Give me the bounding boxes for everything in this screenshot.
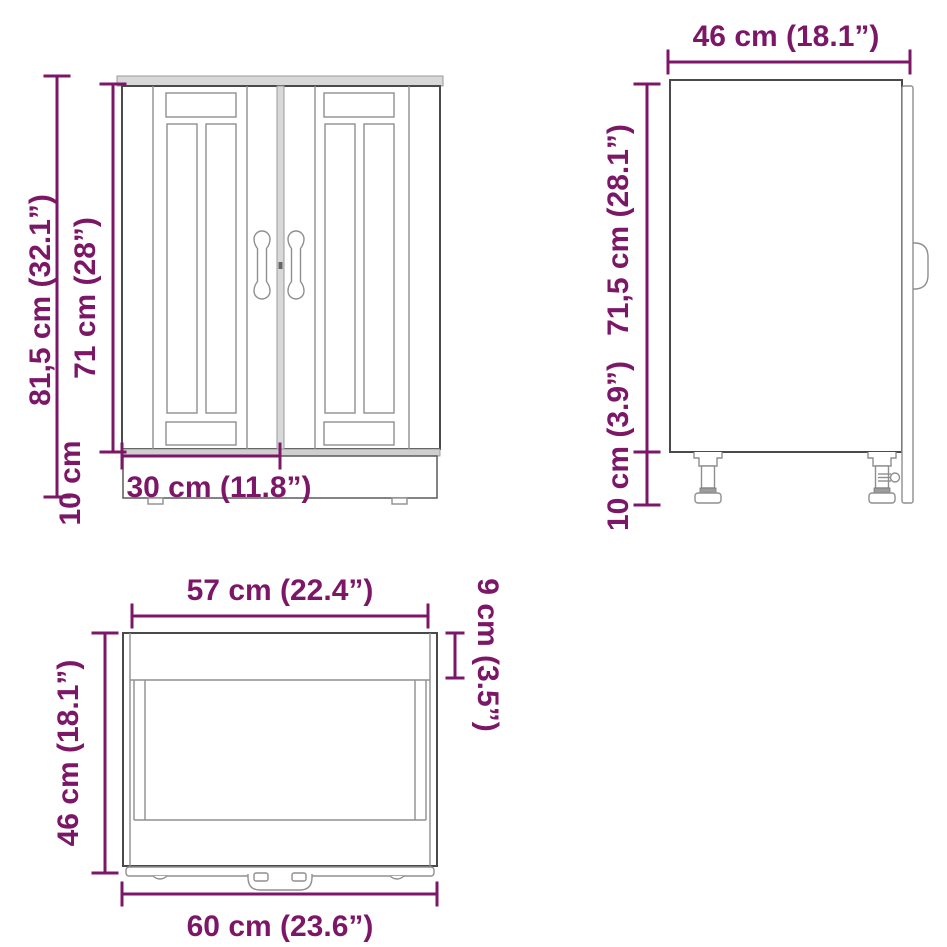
side-view: 46 cm (18.1”) 71,5 cm (28.1”) 10 cm (3.9…: [602, 20, 928, 531]
top-view: 57 cm (22.4”) 9 cm (3.5”) 46 cm (18.1”) …: [52, 574, 504, 943]
top-cabinet-body: [123, 633, 437, 866]
side-depth-label: 46 cm (18.1”): [693, 20, 880, 53]
side-leg-height-label: 10 cm (3.9”): [602, 361, 635, 531]
front-door-width-label: 30 cm (11.8”): [126, 471, 311, 504]
side-left-foot-stem: [702, 466, 715, 488]
side-left-foot-collar: [700, 488, 716, 493]
side-body-height-label: 71,5 cm (28.1”): [602, 124, 635, 336]
side-door-handle: [913, 243, 928, 289]
top-depth-label: 46 cm (18.1”): [52, 660, 85, 847]
side-left-foot-bracket: [694, 452, 722, 466]
side-right-foot-collar: [874, 488, 890, 493]
top-door-front-notch: [153, 876, 167, 879]
side-right-foot-pad: [869, 493, 895, 503]
side-right-foot-bracket: [868, 452, 896, 466]
top-handle-post: [292, 873, 306, 881]
diagram-canvas: 81,5 cm (32.1”) 71 cm (28”) 10 cm 30 cm …: [0, 0, 947, 947]
top-total-width-label: 60 cm (23.6”): [187, 910, 374, 943]
top-carcass-width-label: 57 cm (22.4”): [187, 574, 374, 607]
top-front-depth-label: 9 cm (3.5”): [471, 578, 504, 731]
front-door-height-label: 71 cm (28”): [69, 217, 102, 379]
front-view: 81,5 cm (32.1”) 71 cm (28”) 10 cm 30 cm …: [24, 76, 443, 526]
front-plinth-height-label: 10 cm: [54, 440, 87, 525]
side-cabinet-body: [670, 80, 902, 452]
side-left-foot-pad: [695, 493, 721, 503]
top-handle-post: [254, 873, 268, 881]
cabinet-dimensions-diagram: 81,5 cm (32.1”) 71 cm (28”) 10 cm 30 cm …: [0, 0, 947, 947]
side-door-front-edge: [902, 86, 913, 503]
top-door-front-notch: [390, 876, 404, 879]
front-foot-pad: [392, 498, 407, 504]
side-foot-screw-head: [891, 473, 900, 482]
front-worktop-edge: [117, 76, 443, 86]
front-total-height-label: 81,5 cm (32.1”): [24, 194, 57, 406]
front-door-gap-hinge-dot: [279, 262, 283, 269]
